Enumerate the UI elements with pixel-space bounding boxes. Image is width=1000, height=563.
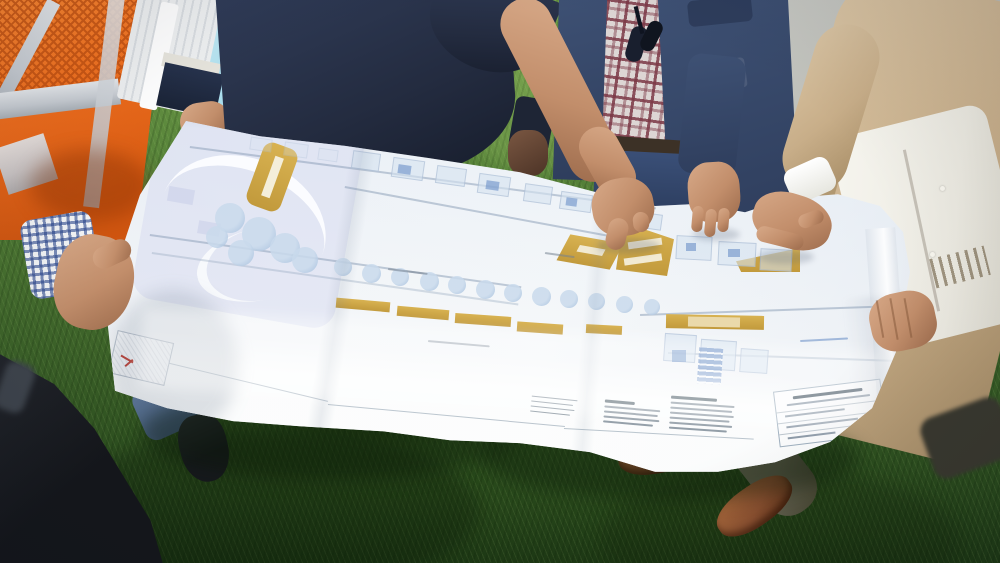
map-band-marking bbox=[688, 317, 740, 328]
map-building-core bbox=[485, 180, 499, 191]
hand-shadow bbox=[758, 250, 814, 264]
map-tree bbox=[420, 272, 439, 291]
map-tree bbox=[228, 240, 254, 266]
map-tree bbox=[362, 264, 381, 283]
map-tree bbox=[616, 296, 633, 313]
map-tree bbox=[504, 284, 522, 302]
map-tree bbox=[532, 287, 551, 306]
map-tree bbox=[476, 280, 495, 299]
map-building bbox=[523, 183, 553, 205]
photo-scene bbox=[0, 0, 1000, 563]
map-tree bbox=[448, 276, 466, 294]
shirt-button bbox=[940, 186, 945, 191]
shirt-button bbox=[930, 252, 935, 257]
map-tree bbox=[644, 299, 660, 315]
map-building-core bbox=[397, 164, 411, 175]
map-tree bbox=[560, 290, 578, 308]
map-tree bbox=[292, 247, 318, 273]
map-tree bbox=[206, 226, 228, 248]
map-building-core bbox=[728, 249, 740, 257]
map-building-core bbox=[565, 197, 577, 206]
map-building-core bbox=[686, 243, 696, 251]
map-building bbox=[317, 148, 338, 163]
